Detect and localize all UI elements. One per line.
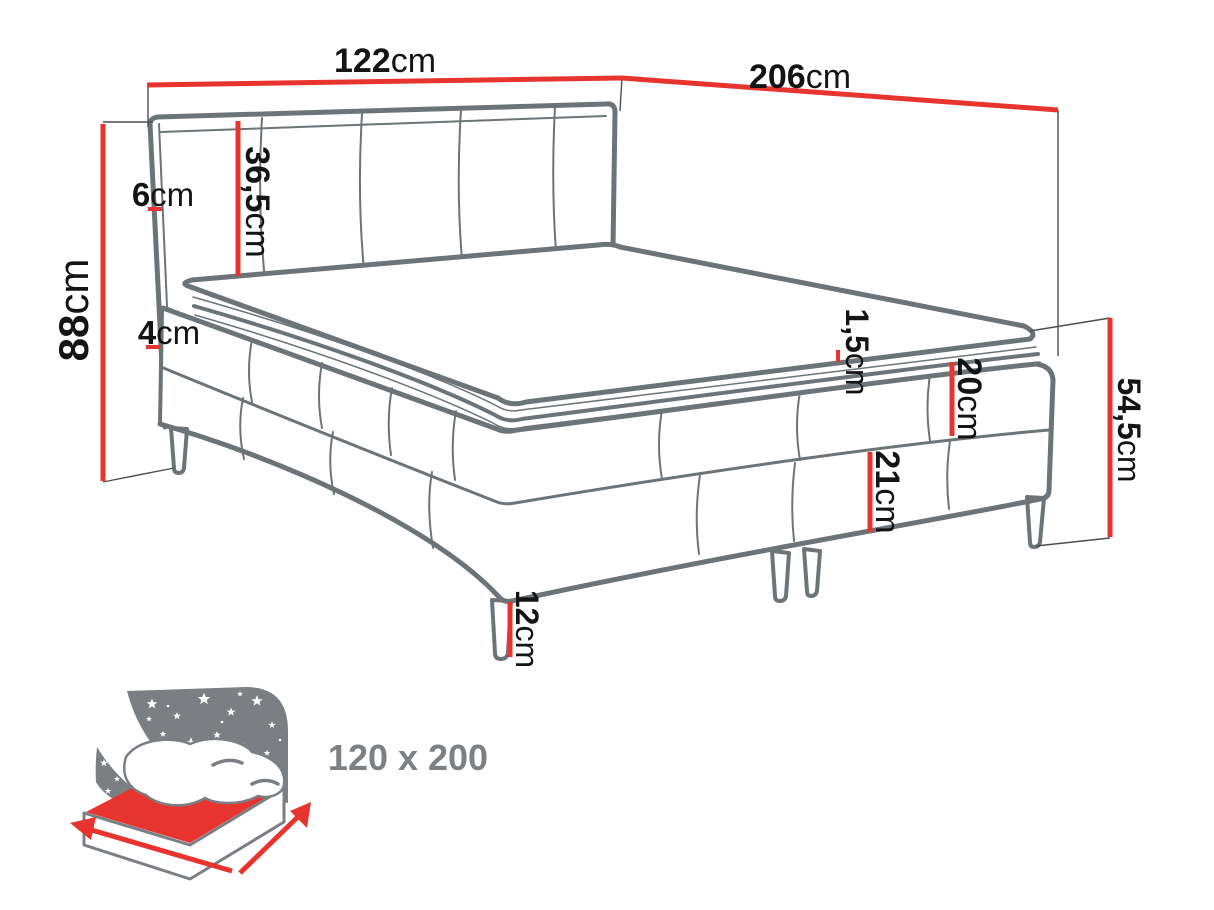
label-headboard-thickness: 6cm: [132, 176, 194, 213]
leg-middle-left: [772, 551, 789, 601]
bed-drawing: [150, 104, 1053, 659]
leg-middle-right: [804, 549, 820, 596]
label-upper-box-height: 20cm: [950, 357, 988, 440]
label-total-height: 88cm: [50, 259, 97, 362]
bed-dimension-diagram: 122cm 206cm 88cm 6cm 36,5cm 4cm 1,5cm 20…: [0, 0, 1214, 910]
mattress-size-icon: [70, 687, 311, 879]
label-leg-height: 12cm: [509, 590, 545, 668]
label-topper-seam: 1,5cm: [839, 308, 875, 395]
leg-far-right: [1027, 497, 1044, 547]
ext-side-height-top: [1030, 318, 1110, 331]
label-width: 122cm: [334, 42, 436, 80]
label-side-total-height: 54,5cm: [1111, 378, 1147, 483]
ext-height-bottom-floor: [103, 468, 174, 482]
label-lower-box-height: 21cm: [868, 450, 906, 533]
label-length: 206cm: [749, 58, 851, 96]
ext-side-height-bottom: [1036, 538, 1110, 546]
label-headboard-height: 36,5cm: [238, 146, 276, 258]
ext-width-right: [620, 77, 622, 111]
leg-back-left: [171, 428, 187, 473]
diagram-canvas: 122cm 206cm 88cm 6cm 36,5cm 4cm 1,5cm 20…: [0, 0, 1214, 910]
mattress-size-text: 120 x 200: [328, 737, 488, 778]
label-mattress-edge: 4cm: [138, 314, 200, 351]
